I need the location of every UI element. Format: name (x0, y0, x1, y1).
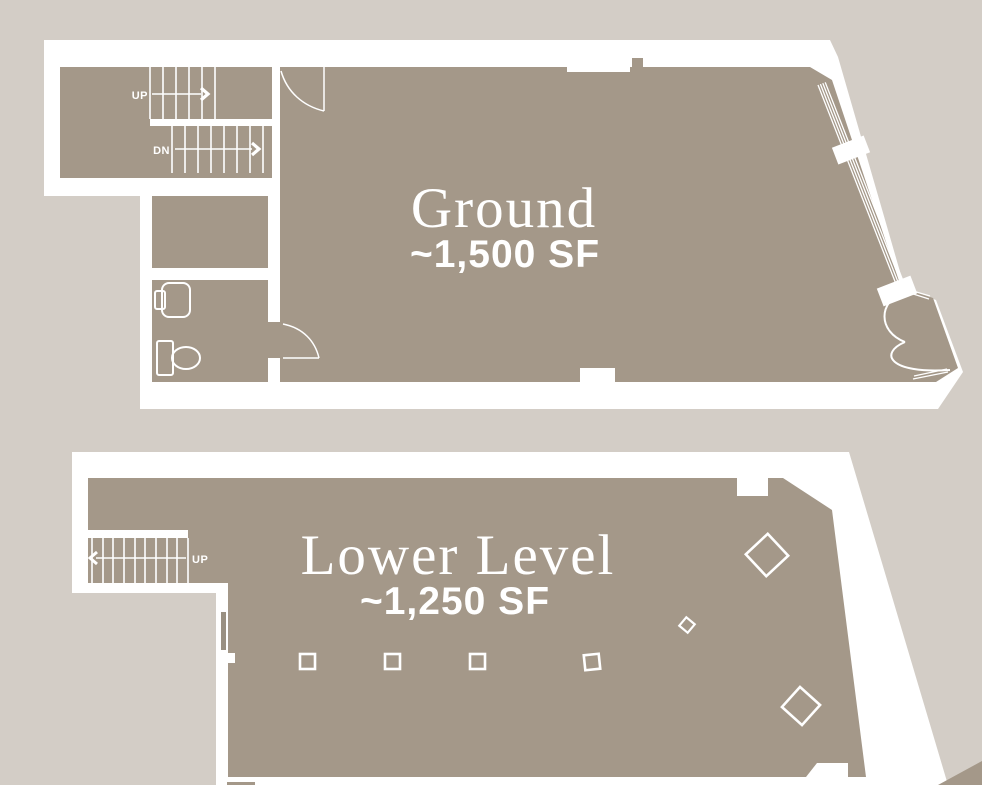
lower-top-notch (737, 478, 768, 496)
lower-title-label: Lower Level (301, 524, 616, 587)
lower-left-jamb-tab (228, 653, 235, 663)
ground-small-room-floor (152, 196, 268, 268)
ground-area-label: ~1,500 SF (410, 233, 600, 276)
floor-plan-canvas: UP DN (0, 0, 982, 785)
lower-up-label: UP (192, 554, 208, 566)
lower-level-plan: UP Lower Level ~1,250 SF (72, 452, 948, 785)
ground-dn-label: DN (153, 145, 170, 157)
ground-main-hall-floor (280, 58, 958, 382)
ground-title-label: Ground (411, 177, 597, 240)
ground-floor-plan: UP DN (44, 40, 963, 409)
floor-plan-page: UP DN (0, 0, 982, 785)
lower-floor (88, 478, 866, 777)
ground-bathroom-floor (152, 280, 268, 382)
lower-stair-divider (88, 530, 188, 538)
corner-wedge (938, 761, 982, 785)
ground-bathroom-doorway (268, 322, 280, 358)
ground-stair-divider (150, 119, 272, 126)
ground-up-label: UP (132, 90, 148, 102)
lower-door-leaf (221, 612, 226, 650)
lower-area-label: ~1,250 SF (360, 580, 550, 623)
